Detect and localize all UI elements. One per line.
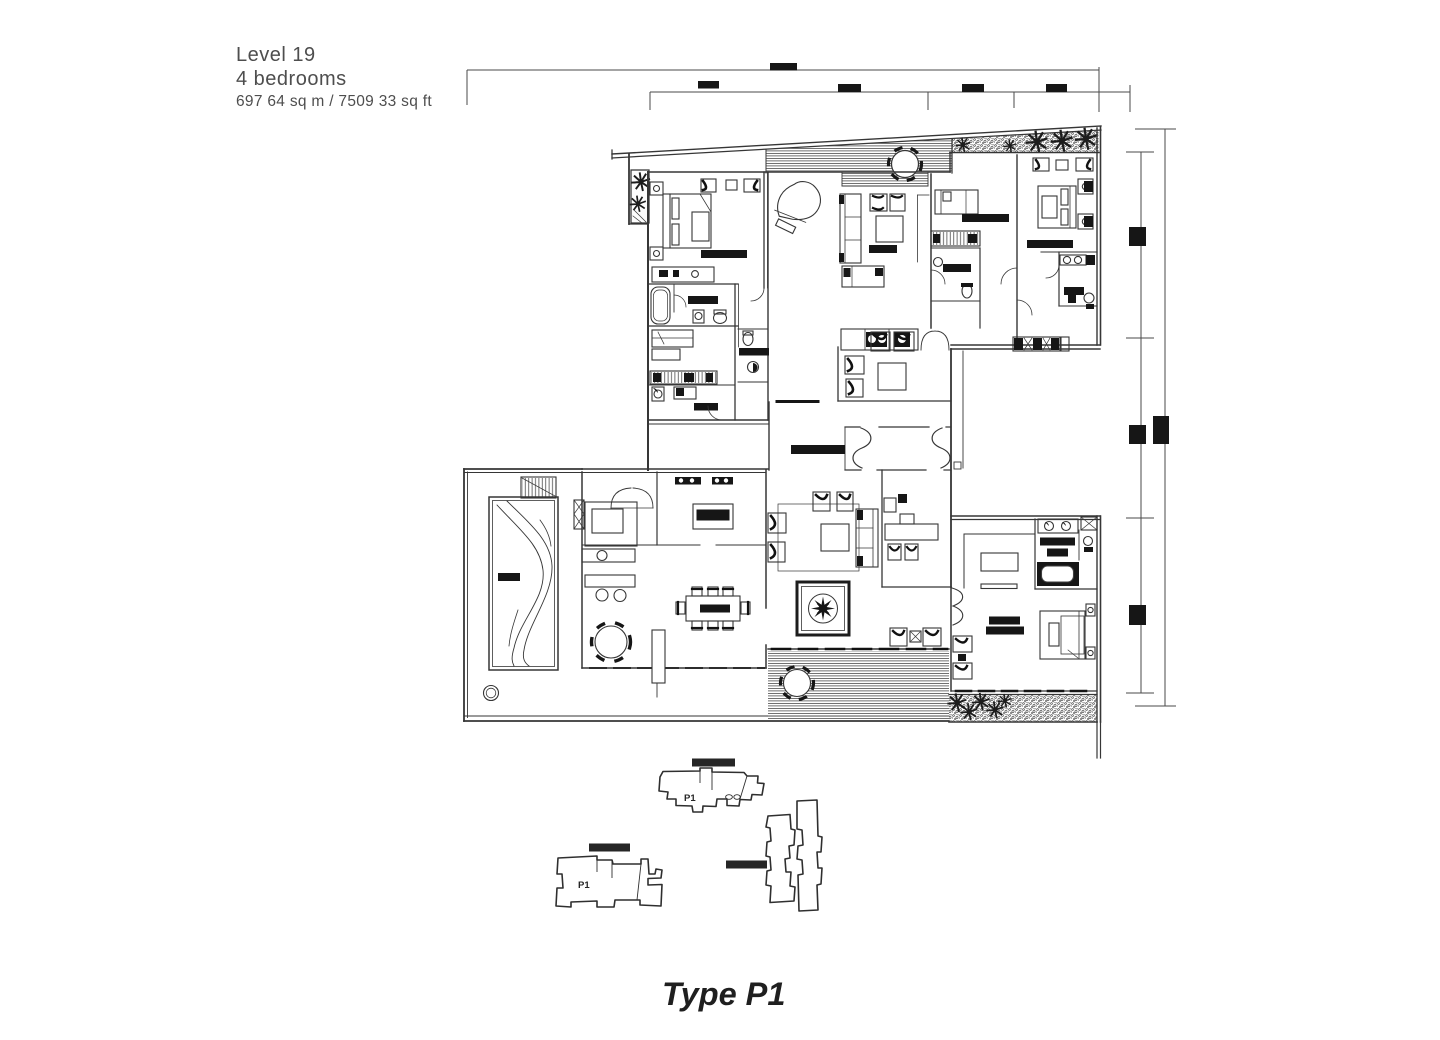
svg-text:4 bedrooms: 4 bedrooms	[236, 68, 347, 90]
svg-text:P1: P1	[684, 793, 696, 804]
svg-text:697 64 sq m / 7509 33 sq ft: 697 64 sq m / 7509 33 sq ft	[236, 93, 432, 110]
svg-text:P1: P1	[578, 880, 590, 891]
svg-text:Level 19: Level 19	[236, 44, 316, 66]
svg-text:Type P1: Type P1	[662, 976, 785, 1012]
